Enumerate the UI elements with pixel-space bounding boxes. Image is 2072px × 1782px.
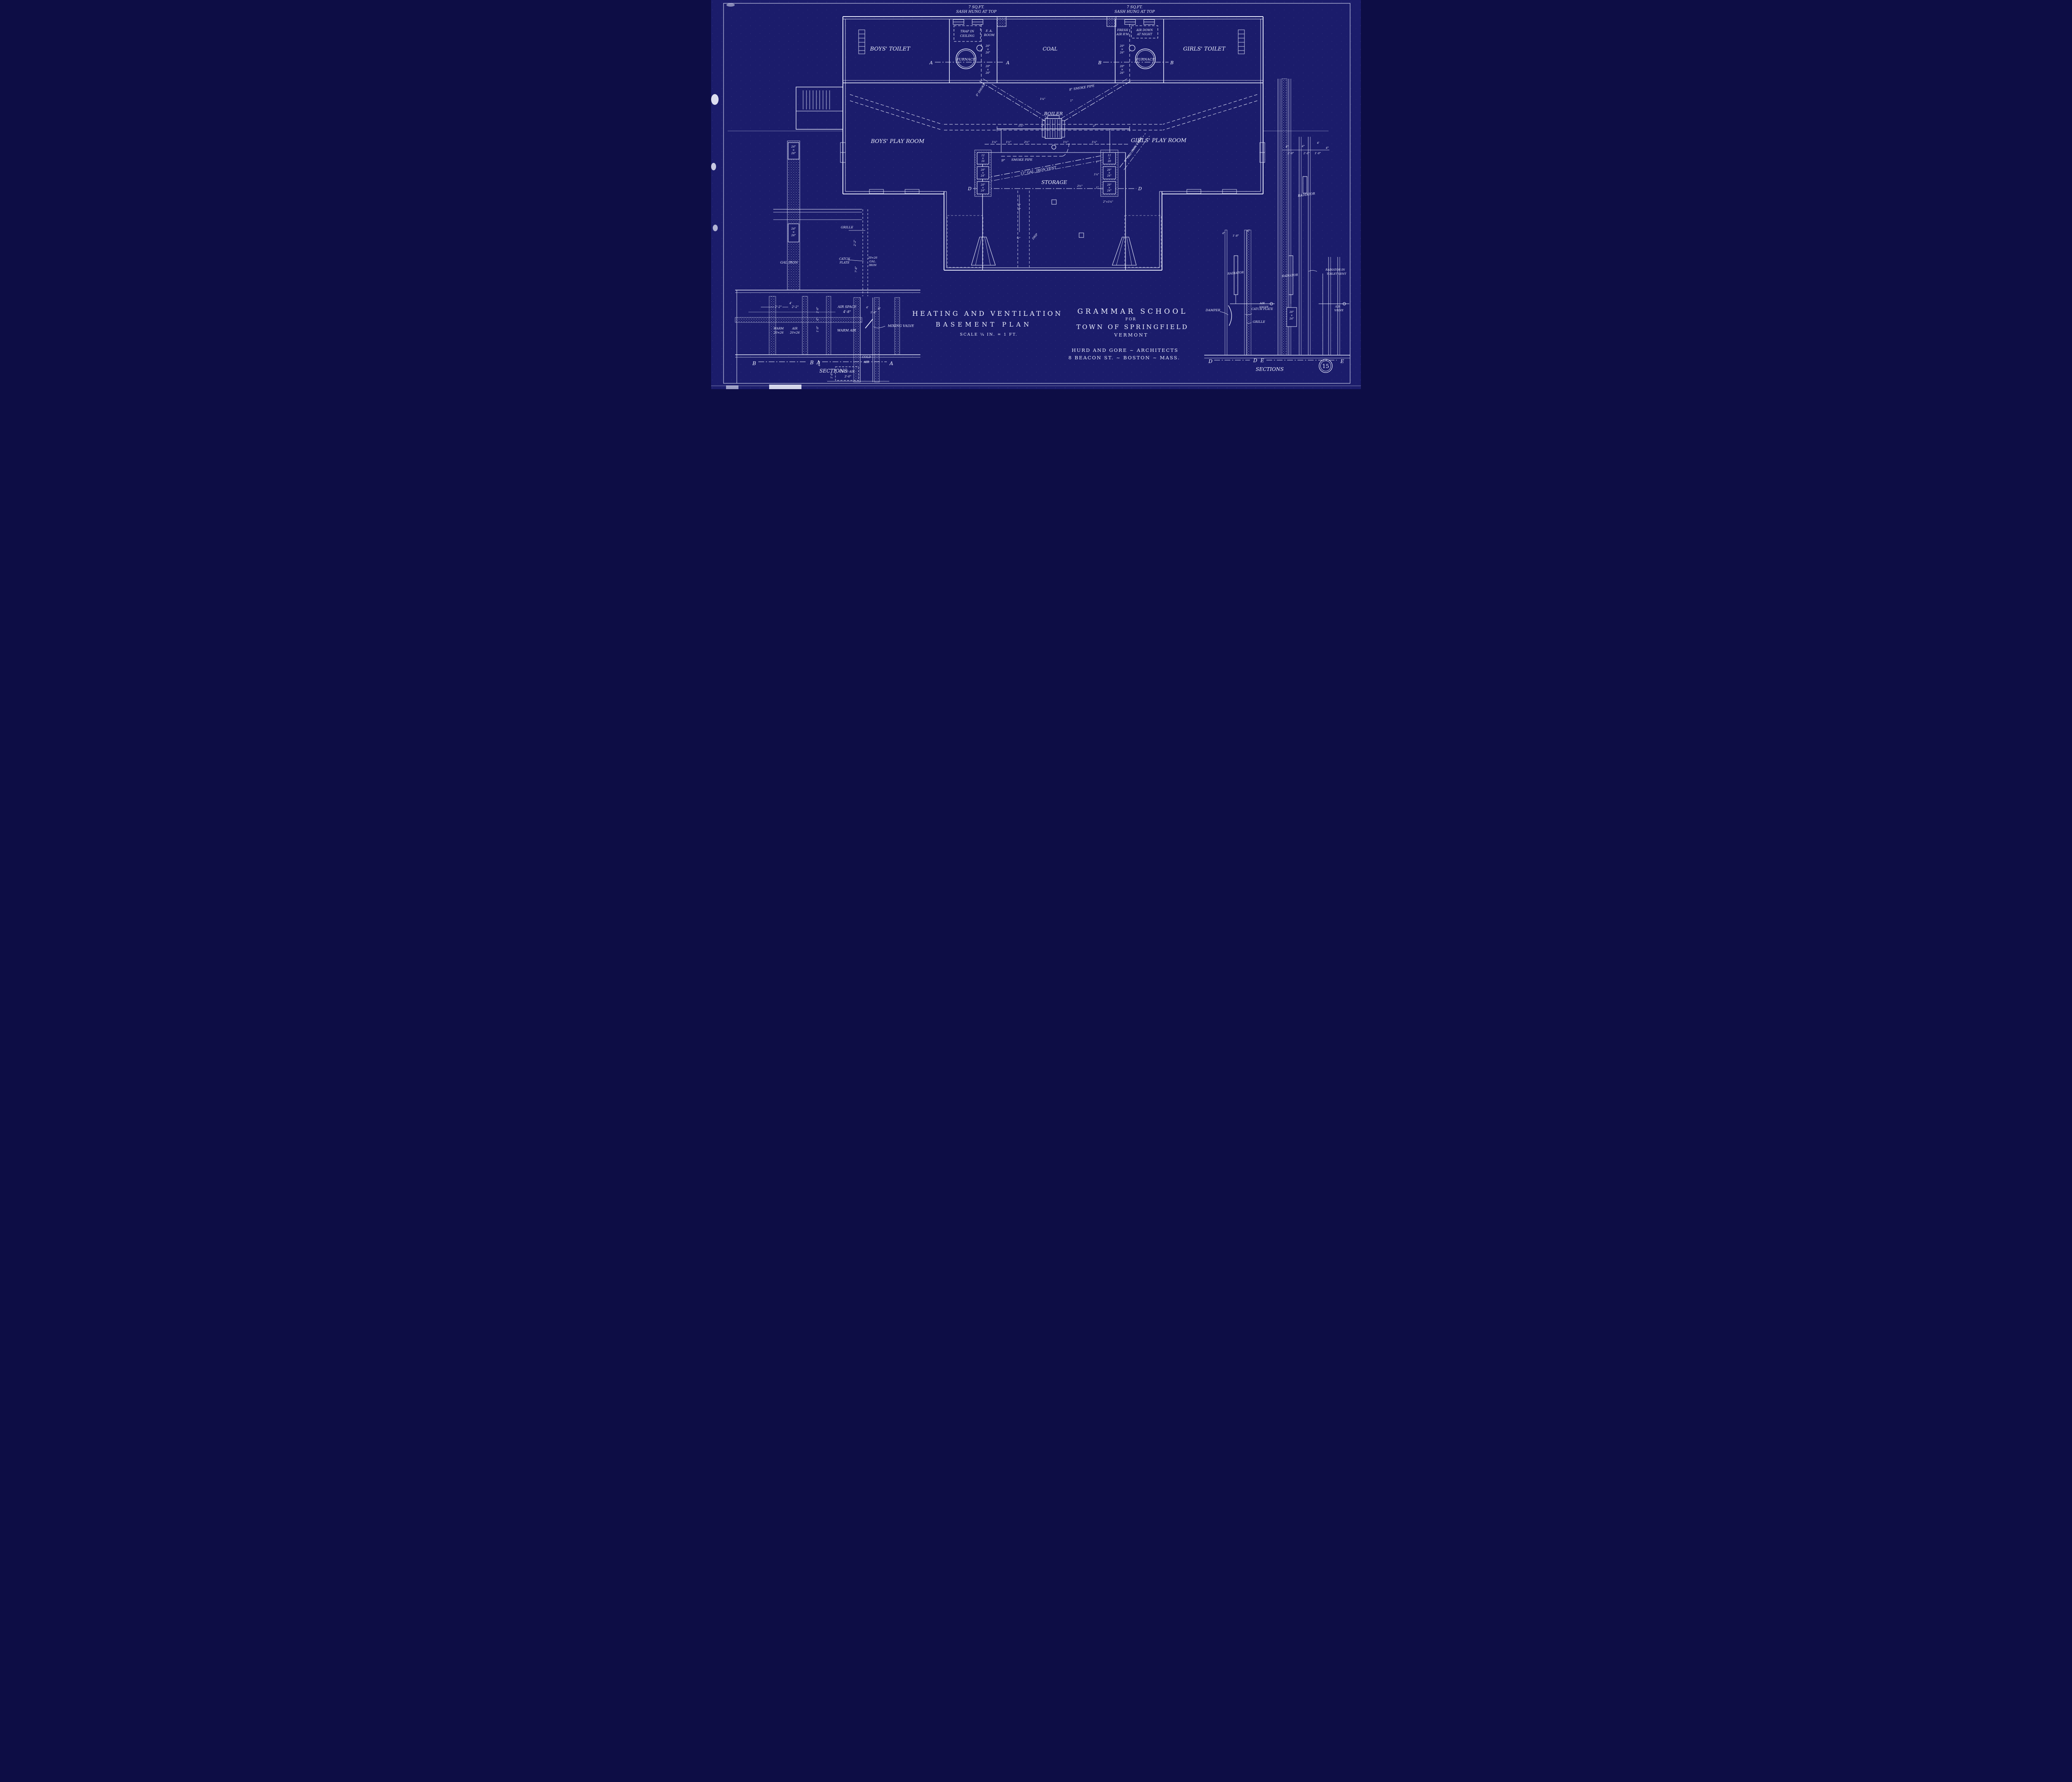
room-girls-toilet: GIRLS' TOILET	[1183, 46, 1226, 52]
radiator-in-toilet-vent-1: RADIATOR IN	[1325, 268, 1345, 271]
svg-text:×: ×	[982, 172, 984, 174]
project-title-3: TOWN OF SPRINGFIELD	[1076, 323, 1188, 331]
svg-text:26": 26"	[985, 51, 990, 54]
svg-text:24": 24"	[791, 145, 796, 148]
svg-text:12: 12	[981, 154, 985, 157]
svg-text:1'-8": 1'-8"	[870, 311, 876, 314]
drawing-scale: SCALE ¼ IN. = 1 FT.	[960, 332, 1017, 337]
svg-text:E: E	[1340, 358, 1344, 364]
fa-room-2: ROOM	[983, 33, 995, 37]
warm-air-label: WARM AIR	[837, 329, 856, 332]
svg-text:2½": 2½"	[1077, 184, 1082, 188]
fresh-air-2: AIR R'M	[1116, 33, 1129, 36]
svg-text:1'-0": 1'-0"	[1314, 152, 1321, 155]
svg-text:26": 26"	[1119, 71, 1124, 75]
air-down-2: AT NIGHT	[1137, 33, 1153, 36]
section-letter-a: A	[929, 60, 933, 65]
furnace-left-label: FURNACE	[956, 58, 976, 62]
smoke-pipe-9-label: SMOKE PIPE	[1012, 158, 1033, 162]
svg-text:24": 24"	[980, 189, 985, 192]
svg-text:26": 26"	[791, 152, 796, 155]
trap-note-1: TRAP IN	[960, 29, 974, 33]
svg-text:20": 20"	[985, 65, 990, 68]
svg-text:20": 20"	[1107, 184, 1112, 186]
svg-text:1": 1"	[1096, 186, 1099, 189]
svg-text:×: ×	[1290, 314, 1293, 317]
svg-text:20": 20"	[980, 169, 985, 172]
air-down-1: AIR DOWN	[1136, 29, 1153, 32]
svg-text:4": 4"	[1301, 145, 1305, 148]
svg-text:B: B	[810, 360, 814, 366]
mixing-valve-label: MIXING VALVE	[887, 324, 914, 328]
svg-text:2½": 2½"	[1024, 140, 1029, 144]
svg-text:1'-8": 1'-8"	[816, 326, 819, 332]
svg-text:20": 20"	[1107, 169, 1112, 172]
sheet-number: 15	[1322, 363, 1329, 370]
svg-text:3'-0": 3'-0"	[845, 375, 851, 378]
sash-note-left-1: 7 SQ.FT.	[968, 5, 984, 10]
svg-text:×: ×	[982, 186, 984, 189]
svg-text:×: ×	[792, 148, 794, 152]
svg-text:×: ×	[1108, 172, 1110, 174]
svg-text:A: A	[889, 361, 893, 366]
boiler-label: BOILER	[1043, 111, 1063, 116]
svg-text:2'-2": 2'-2"	[853, 240, 857, 246]
svg-text:1¼": 1¼"	[1094, 173, 1099, 176]
radiator-in-toilet-vent-2: TOILET VENT	[1326, 272, 1346, 276]
section-letter-b: B	[1170, 60, 1174, 65]
room-boys-play: BOYS' PLAY ROOM	[870, 138, 925, 145]
svg-text:×: ×	[1121, 48, 1123, 51]
svg-text:1": 1"	[1096, 161, 1099, 164]
drawing-title-2: BASEMENT PLAN	[936, 321, 1032, 328]
svg-text:24": 24"	[791, 227, 796, 230]
svg-text:1": 1"	[1018, 204, 1021, 207]
room-storage: STORAGE	[1041, 179, 1067, 185]
svg-text:24": 24"	[980, 174, 985, 177]
air-valve-right-1: AIR	[1335, 305, 1340, 308]
trap-note-2: CEILING	[960, 34, 975, 38]
svg-text:6": 6"	[816, 317, 819, 320]
svg-text:IRON: IRON	[869, 264, 877, 267]
cold-air-duct-1: COLD	[862, 356, 871, 359]
svg-text:1¼": 1¼"	[1092, 140, 1097, 144]
svg-text:1": 1"	[1018, 208, 1021, 211]
svg-text:12: 12	[1108, 154, 1111, 157]
svg-text:2'-6": 2'-6"	[816, 307, 819, 313]
sections-label-right: SECTIONS	[1256, 366, 1283, 372]
warm-air-duct-1: WARM	[774, 327, 784, 330]
svg-text:2'-2": 2'-2"	[775, 305, 782, 309]
cold-air-duct-2: AIR	[863, 361, 869, 364]
svg-text:1¼": 1¼"	[1040, 97, 1045, 101]
svg-text:8": 8"	[878, 307, 881, 310]
warm-air-duct-2: AIR	[792, 327, 798, 330]
svg-text:20": 20"	[980, 184, 985, 186]
svg-text:4": 4"	[1247, 229, 1250, 232]
svg-text:1½": 1½"	[1018, 124, 1024, 128]
grille-label-section: GRILLE	[1253, 320, 1266, 324]
air-valve-right-2: VALVE	[1334, 309, 1343, 312]
air-valve-left-2: VALVE	[1259, 305, 1268, 309]
svg-text:20": 20"	[1289, 311, 1294, 314]
architect-line-2: 8 BEACON ST. ~ BOSTON ~ MASS.	[1068, 355, 1180, 361]
svg-text:B: B	[752, 361, 756, 366]
svg-text:20×26: 20×26	[868, 256, 877, 259]
svg-text:×: ×	[987, 48, 989, 51]
svg-text:×: ×	[792, 230, 794, 234]
svg-text:4': 4'	[866, 306, 869, 309]
svg-text:16: 16	[981, 160, 985, 163]
section-letter-d: D	[1138, 186, 1142, 191]
fa-room-1: F. A.	[985, 29, 993, 33]
svg-text:2'-2": 2'-2"	[792, 305, 799, 309]
svg-text:×: ×	[982, 157, 984, 160]
svg-text:1¼": 1¼"	[992, 140, 997, 144]
svg-text:×: ×	[1121, 68, 1123, 71]
room-coal: COAL	[1043, 46, 1058, 52]
svg-text:2'-0": 2'-0"	[1287, 152, 1294, 155]
air-space-label: AIR SPACE	[837, 305, 857, 309]
fresh-air-1: FRESH	[1117, 29, 1128, 32]
svg-text:D: D	[1208, 358, 1213, 364]
section-letter-a: A	[1006, 60, 1009, 65]
air-valve-left-1: AIR	[1259, 302, 1265, 305]
svg-text:20": 20"	[1119, 65, 1124, 68]
section-letter-b: B	[1098, 60, 1101, 65]
gal-iron-label: GAL IRON	[780, 261, 799, 264]
sash-note-right-2: SASH HUNG AT TOP	[1114, 10, 1155, 14]
svg-text:20": 20"	[1119, 44, 1124, 48]
sash-note-right-1: 7 SQ.FT.	[1127, 5, 1143, 10]
svg-text:24": 24"	[1107, 189, 1112, 192]
svg-text:26": 26"	[1119, 51, 1124, 54]
grille-label-plan: GRILLE	[841, 225, 854, 229]
svg-text:20: 20	[1107, 160, 1111, 163]
architect-line-1: HURD AND GORE ~ ARCHITECTS	[1072, 347, 1179, 353]
damper-label: DAMPER	[1205, 308, 1220, 312]
svg-text:24": 24"	[1107, 174, 1112, 177]
svg-text:20×26: 20×26	[773, 331, 784, 334]
svg-text:4": 4"	[1325, 146, 1329, 150]
svg-text:26": 26"	[985, 71, 990, 75]
svg-text:4': 4'	[789, 302, 792, 305]
blueprint-sheet: 7 SQ.FT. SASH HUNG AT TOP 7 SQ.FT. SASH …	[711, 0, 1361, 389]
svg-text:×: ×	[1108, 186, 1110, 189]
svg-text:4'-8": 4'-8"	[843, 310, 851, 314]
smoke-pipe-9-size: 9"	[1001, 159, 1005, 163]
room-boys-toilet: BOYS' TOILET	[870, 46, 911, 52]
svg-text:20×26: 20×26	[789, 331, 800, 334]
sections-label-left: SECTIONS	[819, 368, 847, 374]
svg-text:1'-8": 1'-8"	[1232, 234, 1239, 237]
svg-text:1½": 1½"	[1063, 140, 1068, 144]
svg-text:GAL.: GAL.	[869, 260, 876, 263]
blueprint-canvas: 7 SQ.FT. SASH HUNG AT TOP 7 SQ.FT. SASH …	[711, 0, 1361, 389]
drawing-title-1: HEATING AND VENTILATION	[912, 310, 1063, 317]
svg-text:1½": 1½"	[1006, 140, 1011, 144]
catch-plate-plan-1: CATCH	[839, 257, 850, 261]
sash-note-left-2: SASH HUNG AT TOP	[956, 10, 997, 14]
catch-plate-plan-2: PLATE	[839, 261, 850, 264]
svg-text:4": 4"	[1285, 145, 1288, 148]
furnace-right-label: FURNACE	[1135, 58, 1155, 62]
svg-text:7'-6": 7'-6"	[854, 266, 858, 272]
svg-text:½": ½"	[1017, 237, 1020, 240]
svg-text:26": 26"	[791, 234, 796, 237]
svg-text:D: D	[1253, 358, 1257, 363]
svg-text:E: E	[1260, 358, 1264, 363]
svg-text:×: ×	[1108, 157, 1110, 160]
svg-text:2": 2"	[1092, 124, 1096, 128]
svg-text:4": 4"	[1222, 232, 1225, 235]
svg-text:A: A	[816, 360, 821, 366]
project-title-1: GRAMMAR SCHOOL	[1077, 307, 1188, 316]
svg-text:2'-0": 2'-0"	[1303, 152, 1310, 155]
svg-text:×: ×	[987, 68, 989, 71]
svg-text:2"×1¼": 2"×1¼"	[1103, 201, 1113, 203]
svg-text:24": 24"	[1289, 317, 1294, 320]
project-title-4: VERMONT	[1114, 332, 1149, 338]
project-title-2: FOR	[1126, 317, 1136, 322]
svg-text:2": 2"	[1041, 124, 1044, 128]
svg-text:1": 1"	[1070, 99, 1073, 102]
svg-text:4': 4'	[1317, 141, 1319, 145]
section-letter-d: D	[968, 186, 972, 191]
svg-text:20": 20"	[985, 44, 990, 48]
